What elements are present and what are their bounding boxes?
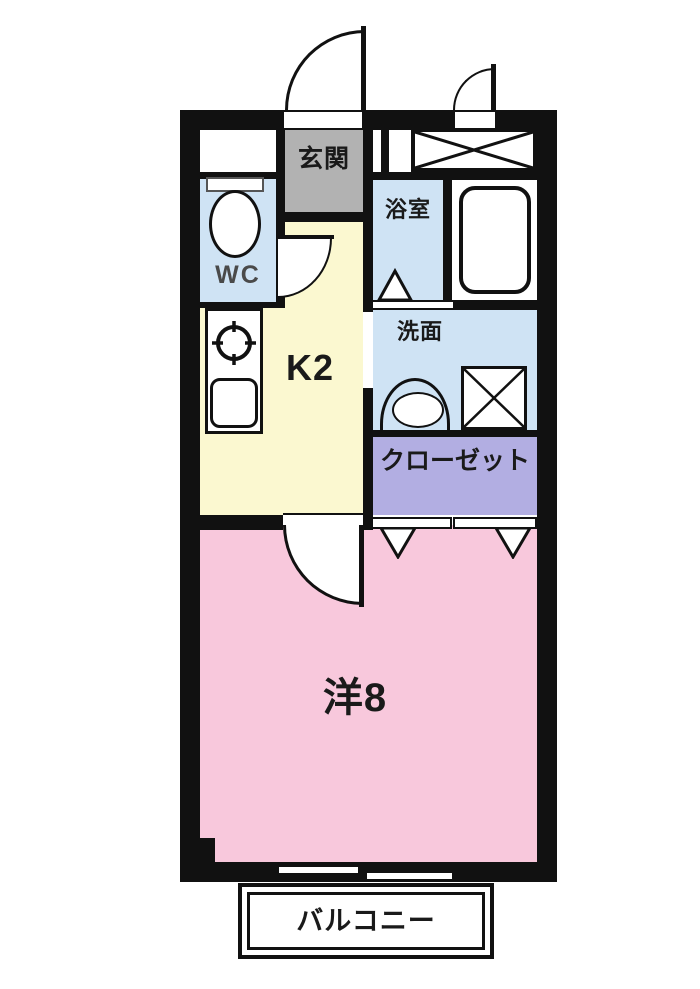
trunk-door-swing: [453, 68, 495, 110]
closet-label: クローゼット: [372, 448, 538, 476]
wall-under-tub: [443, 300, 537, 310]
room-door-opening: [283, 513, 363, 525]
wall-top: [180, 110, 557, 130]
wall-room-top-left: [200, 515, 283, 530]
balcony-window-sash-left: [278, 866, 359, 874]
kitchen-sink-icon: [210, 378, 258, 428]
bath-label: 浴室: [371, 198, 445, 222]
wc-door-leaf: [276, 235, 334, 239]
storage-niche: [200, 130, 276, 172]
stove-burner-icon: [211, 320, 257, 366]
washer-pan-x-icon: [464, 369, 524, 427]
storage-x-icon: [415, 132, 533, 168]
washroom-label: 洗面: [378, 320, 462, 344]
room-door-leaf: [359, 525, 364, 607]
washbasin-bowl-icon: [392, 392, 444, 428]
wall-tub-divider: [443, 178, 452, 302]
wall-pipe-space-divider: [381, 130, 389, 172]
balcony-window-sash-right: [366, 872, 453, 880]
closet-door-swing-left-icon: [379, 527, 417, 559]
entry-door-opening: [284, 112, 362, 128]
wall-genkan-step: [276, 212, 367, 222]
wall-left: [180, 110, 200, 882]
main-room-label: 洋8: [295, 676, 415, 720]
closet-door-swing-right-icon: [494, 527, 532, 559]
wall-step-bottom-left: [193, 838, 215, 864]
washer-pan: [461, 366, 527, 430]
kitchen-label: K2: [268, 348, 352, 388]
toilet-bowl-icon: [209, 190, 261, 258]
washroom-door-opening: [363, 312, 373, 388]
entry-door-leaf: [361, 26, 366, 112]
bathtub-icon: [459, 186, 531, 294]
balcony-inner: バルコニー: [247, 892, 485, 950]
wc-label: WC: [200, 262, 276, 290]
trunk-door-leaf: [491, 64, 496, 112]
wall-right: [537, 110, 557, 882]
storage-box: [411, 128, 537, 172]
wall-bath-top: [373, 172, 537, 180]
pipe-space-right: [389, 130, 411, 172]
floor-plan: バルコニー 玄関 WC 浴室 K2 洗面 クローゼット 洋8: [0, 0, 700, 989]
bath-folding-door-icon: [375, 268, 415, 302]
entry-door-swing: [285, 30, 365, 110]
trunk-door-opening: [455, 112, 495, 128]
balcony-label: バルコニー: [250, 895, 482, 947]
genkan-label: 玄関: [285, 146, 363, 174]
